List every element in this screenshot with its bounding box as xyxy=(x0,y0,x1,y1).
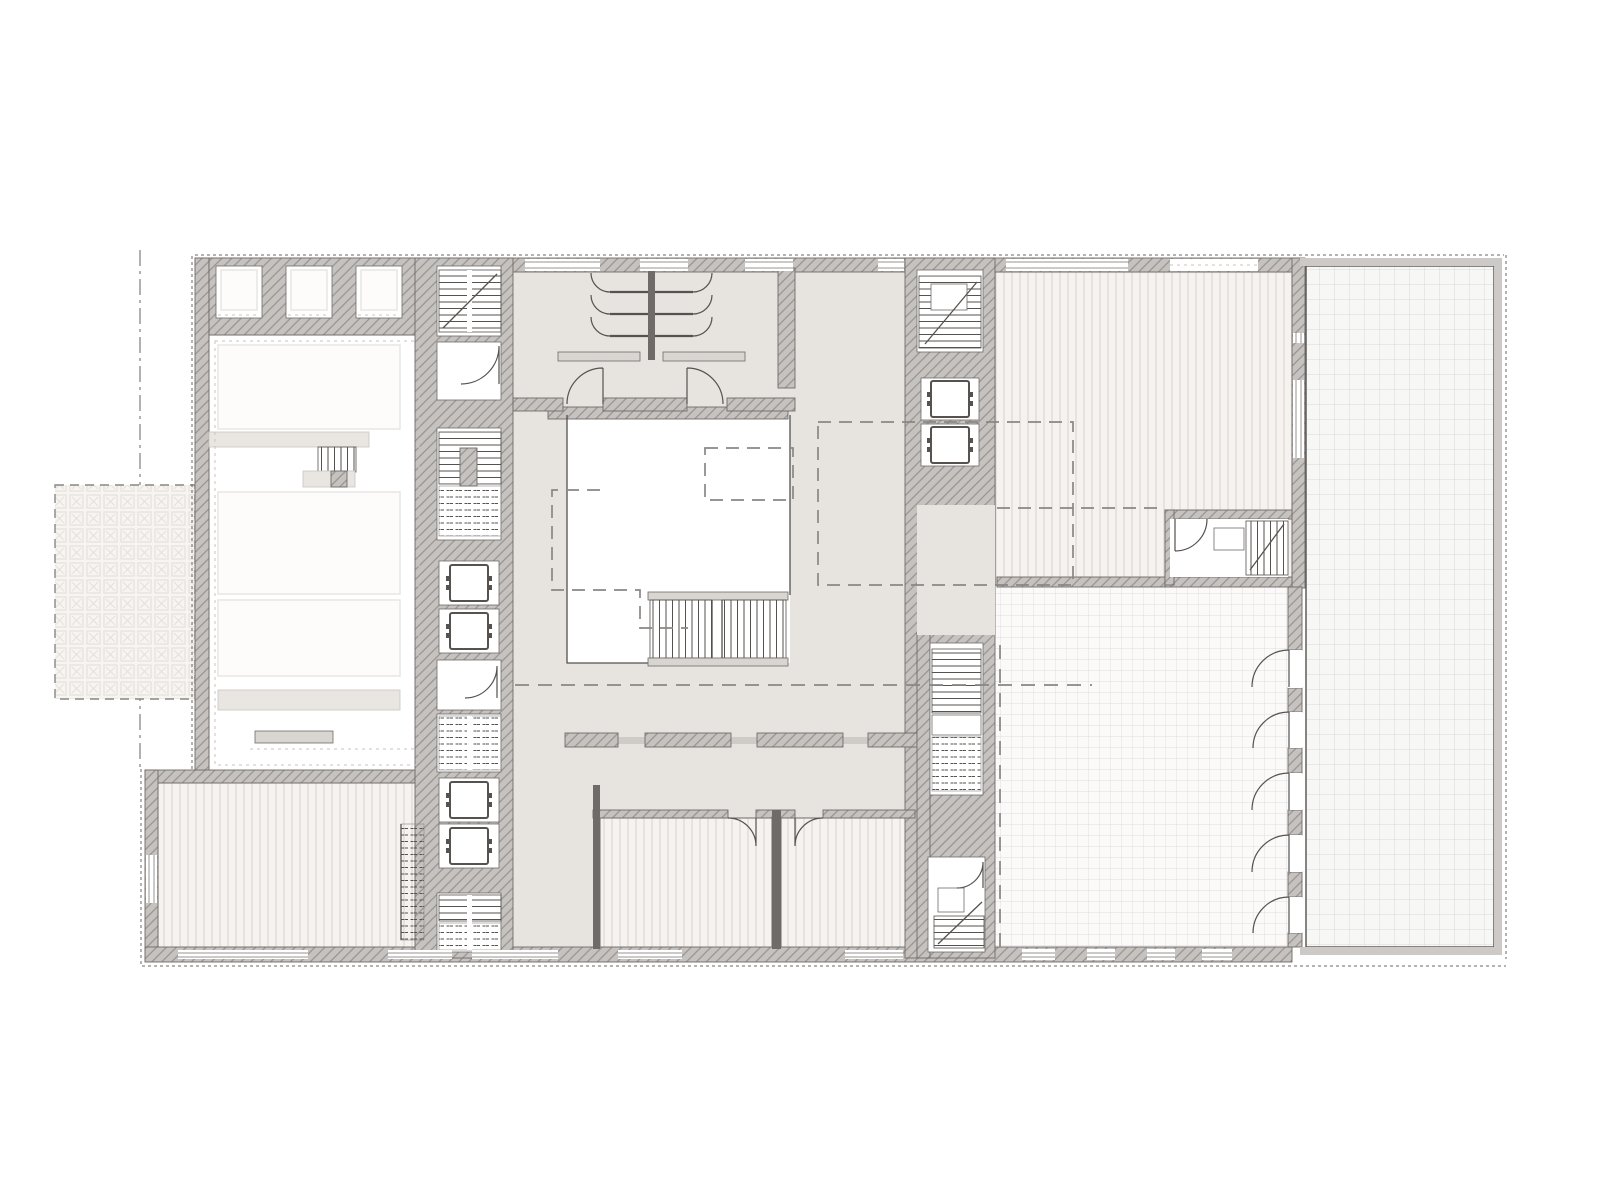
elevator-6 xyxy=(927,427,973,463)
door-row-pier-4 xyxy=(1288,810,1302,835)
door-row-pier-6 xyxy=(1288,933,1302,947)
stair-e2-treads-upper xyxy=(932,649,981,713)
elevator-3 xyxy=(446,782,492,818)
storage-north-wall-c xyxy=(823,810,915,818)
toilet-south-wall-b xyxy=(603,398,687,411)
stair-ne2-landing xyxy=(1214,528,1244,550)
terrace-border-south xyxy=(1300,947,1502,955)
toilet-center-wall xyxy=(648,268,655,360)
door-row-pier-5 xyxy=(1288,872,1302,897)
pilaster-2 xyxy=(645,733,731,747)
exterior-wall-south xyxy=(145,947,1292,962)
elevator-2 xyxy=(446,613,492,649)
grand-stair-flight-east xyxy=(722,600,786,658)
auditorium-room xyxy=(158,783,425,949)
terrace xyxy=(1306,266,1494,947)
lobby-west-1 xyxy=(437,342,501,400)
elevator-4 xyxy=(446,828,492,864)
floor-plan-page xyxy=(0,0,1600,1200)
pilaster-1 xyxy=(565,733,618,747)
toilet-south-wall-c xyxy=(727,398,795,411)
storage-room-east xyxy=(781,818,917,949)
stair-se-landing xyxy=(938,888,964,912)
pilaster-4 xyxy=(868,733,918,747)
gallery-step-pier xyxy=(331,471,347,487)
elevator-5 xyxy=(927,381,973,417)
gallery-low-plinth xyxy=(218,690,400,710)
stair-se-treads xyxy=(934,916,984,948)
gallery-balcony-edge xyxy=(209,432,369,447)
stair-e2-landing xyxy=(932,715,981,735)
stair-e2-treads-lower xyxy=(932,737,981,791)
gallery-exhibit-3 xyxy=(218,600,400,676)
stair-w2-core xyxy=(460,448,477,486)
gallery-exhibit-2 xyxy=(218,492,400,594)
storage-room-west xyxy=(600,818,772,949)
terrace-border-east xyxy=(1494,258,1502,955)
stairroom-north-wall xyxy=(1165,510,1292,519)
grand-stair-top-rail xyxy=(648,592,788,600)
door-row-pier-1 xyxy=(1288,587,1302,650)
gallery-fittings xyxy=(209,341,419,765)
storage-north-wall-a xyxy=(593,810,728,818)
exhibition-hall xyxy=(995,587,1288,947)
floor-plan-drawing xyxy=(0,0,1600,1200)
stair-w2-treads-lower xyxy=(439,486,501,536)
door-row-pier-2 xyxy=(1288,688,1302,712)
toilet-counter-west xyxy=(558,352,640,361)
west-window xyxy=(146,855,157,903)
grand-stair-bottom-rail xyxy=(648,658,788,666)
pilaster-3 xyxy=(757,733,843,747)
terrace-border-north xyxy=(1300,258,1502,266)
toilet-south-wall-a xyxy=(513,398,563,411)
gallery-bench xyxy=(255,731,333,743)
stair-ne-landing xyxy=(931,284,967,310)
door-row-pier-3 xyxy=(1288,748,1302,773)
auditorium-side-stair xyxy=(401,824,424,940)
toilet-counter-east xyxy=(663,352,745,361)
wall-step-west xyxy=(145,770,415,783)
gallery-steps xyxy=(318,447,356,472)
toilet-east-wall xyxy=(778,268,795,388)
storage-west-wall xyxy=(593,785,600,949)
paved-courtyard xyxy=(55,485,195,699)
exterior-wall-west-upper xyxy=(195,258,209,775)
storage-divider-wall xyxy=(772,810,781,949)
stairroom-south-wall xyxy=(1165,577,1292,587)
grand-stair-flight-west xyxy=(650,600,712,658)
gallery-exhibit-1 xyxy=(218,345,400,429)
elevator-1 xyxy=(446,565,492,601)
corridor-east xyxy=(917,505,995,635)
booth-fittings xyxy=(218,270,400,315)
auditorium-fittings xyxy=(401,824,424,940)
